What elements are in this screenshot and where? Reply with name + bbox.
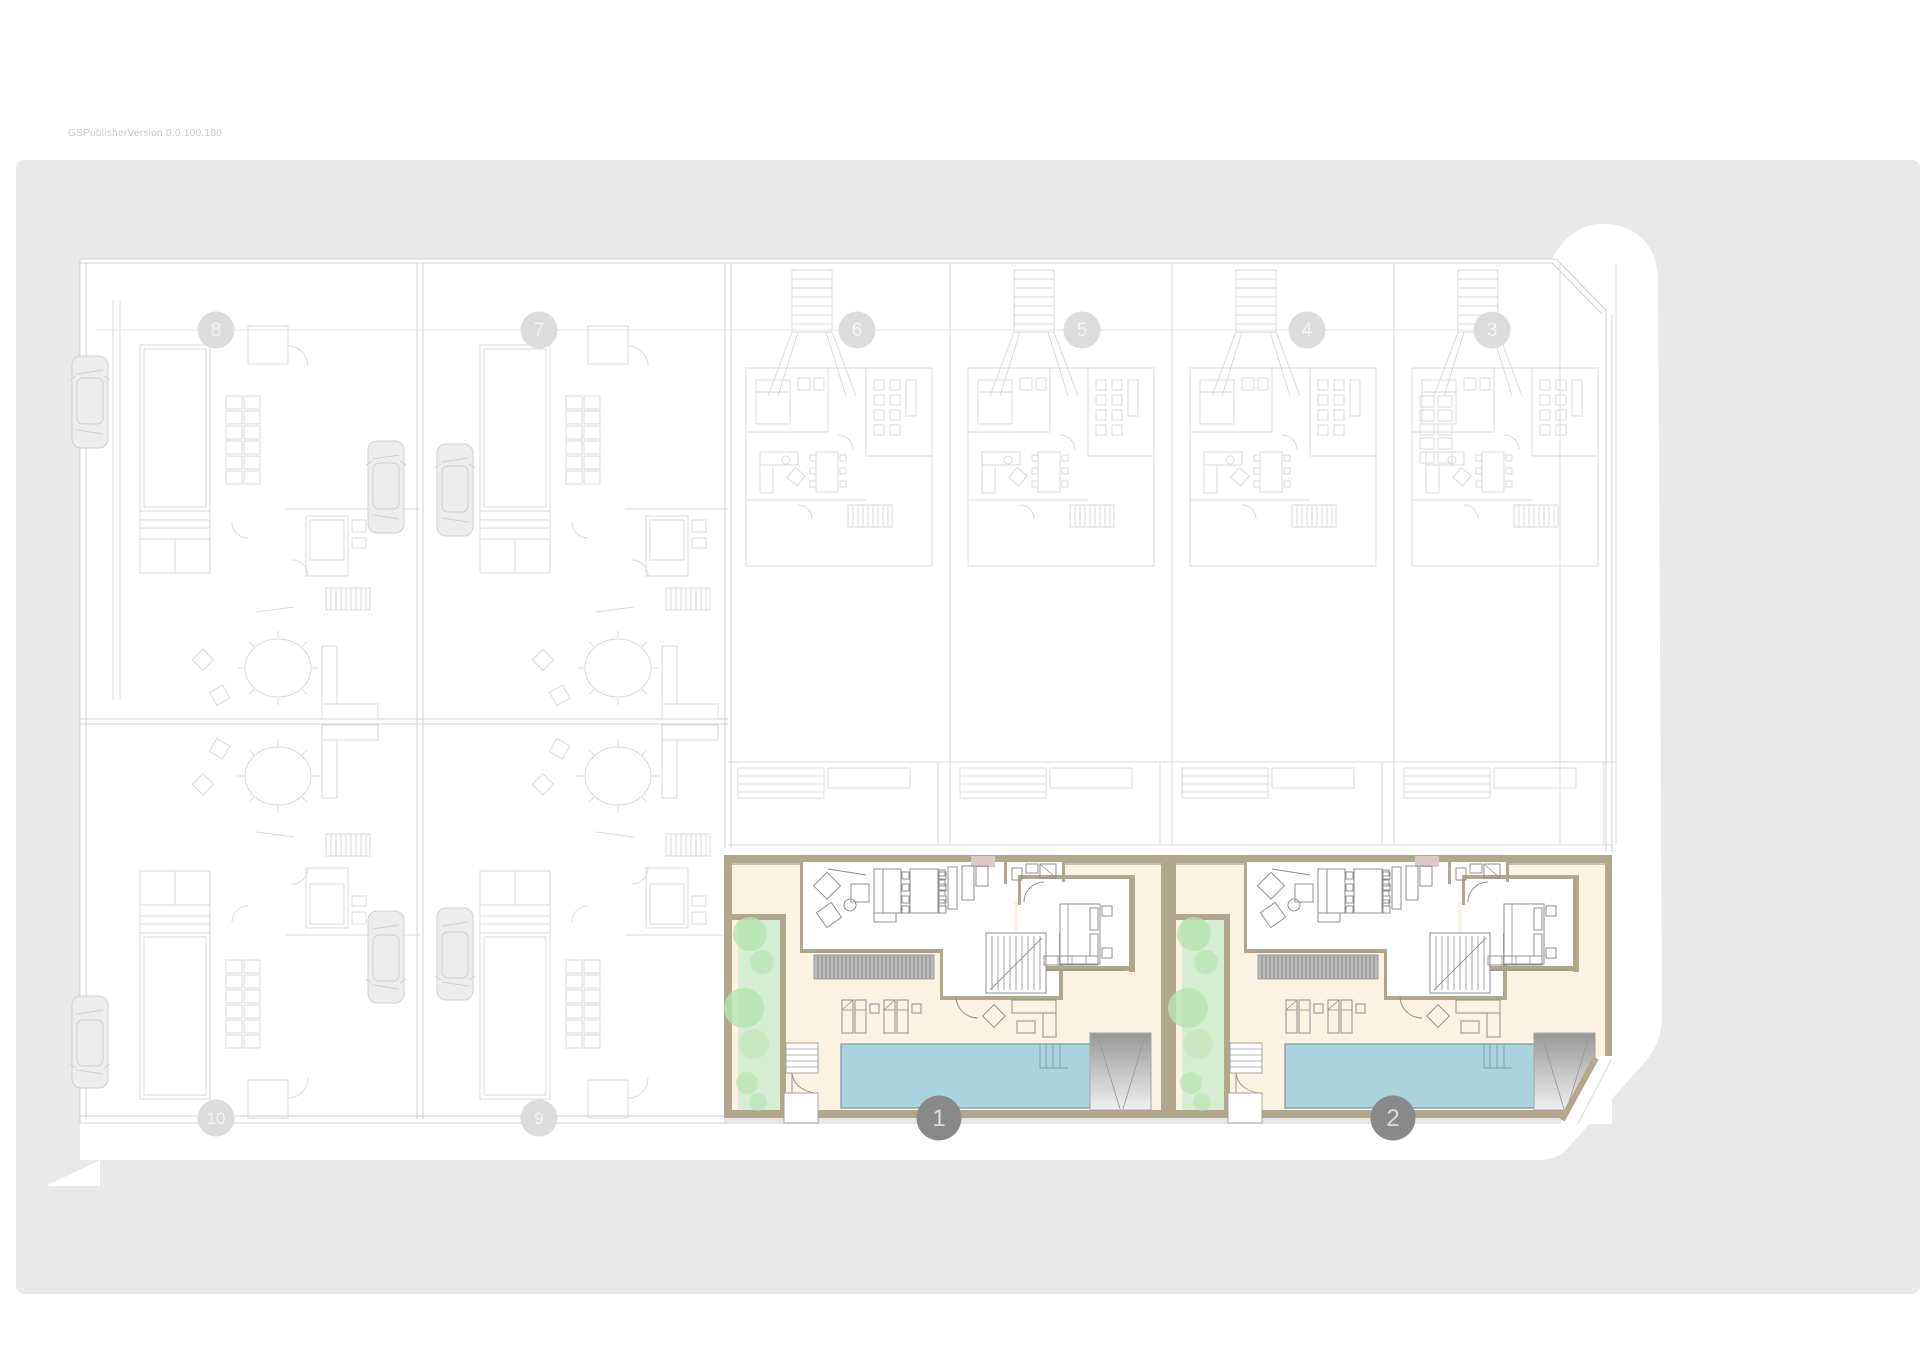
svg-text:2: 2 [1386, 1105, 1399, 1132]
swimming-pool [1285, 1044, 1535, 1108]
grid-bubble-4: 4 [1289, 312, 1326, 349]
svg-text:6: 6 [852, 320, 863, 341]
svg-text:4: 4 [1302, 320, 1313, 341]
site-plan-page: GSPublisherVersion 0.0.100.100 876543109… [0, 0, 1920, 1357]
grid-bubble-8: 8 [198, 312, 235, 349]
unit-2-marker[interactable]: 2 [1371, 1096, 1416, 1141]
site-plan-drawing: 87654310912 [0, 0, 1920, 1357]
driveway-ramp [1090, 1033, 1151, 1110]
louver-canopy [1258, 955, 1378, 979]
svg-text:3: 3 [1487, 320, 1498, 341]
svg-text:9: 9 [534, 1109, 543, 1128]
svg-text:7: 7 [534, 320, 545, 341]
grid-bubble-9: 9 [521, 1100, 558, 1137]
grid-bubble-6: 6 [839, 312, 876, 349]
unit-2-plan[interactable] [1168, 855, 1612, 1124]
stair [1430, 933, 1490, 993]
swimming-pool [841, 1044, 1091, 1108]
svg-text:5: 5 [1077, 320, 1088, 341]
louver-canopy [814, 955, 934, 979]
grid-bubble-3: 3 [1474, 312, 1511, 349]
stair [986, 933, 1046, 993]
unit-1-marker[interactable]: 1 [917, 1096, 962, 1141]
grid-bubble-5: 5 [1064, 312, 1101, 349]
svg-text:10: 10 [207, 1109, 226, 1128]
svg-text:1: 1 [932, 1105, 945, 1132]
svg-text:8: 8 [211, 320, 222, 341]
unit-1-plan[interactable] [724, 855, 1168, 1124]
grid-bubble-7: 7 [521, 312, 558, 349]
grid-bubble-10: 10 [198, 1100, 235, 1137]
